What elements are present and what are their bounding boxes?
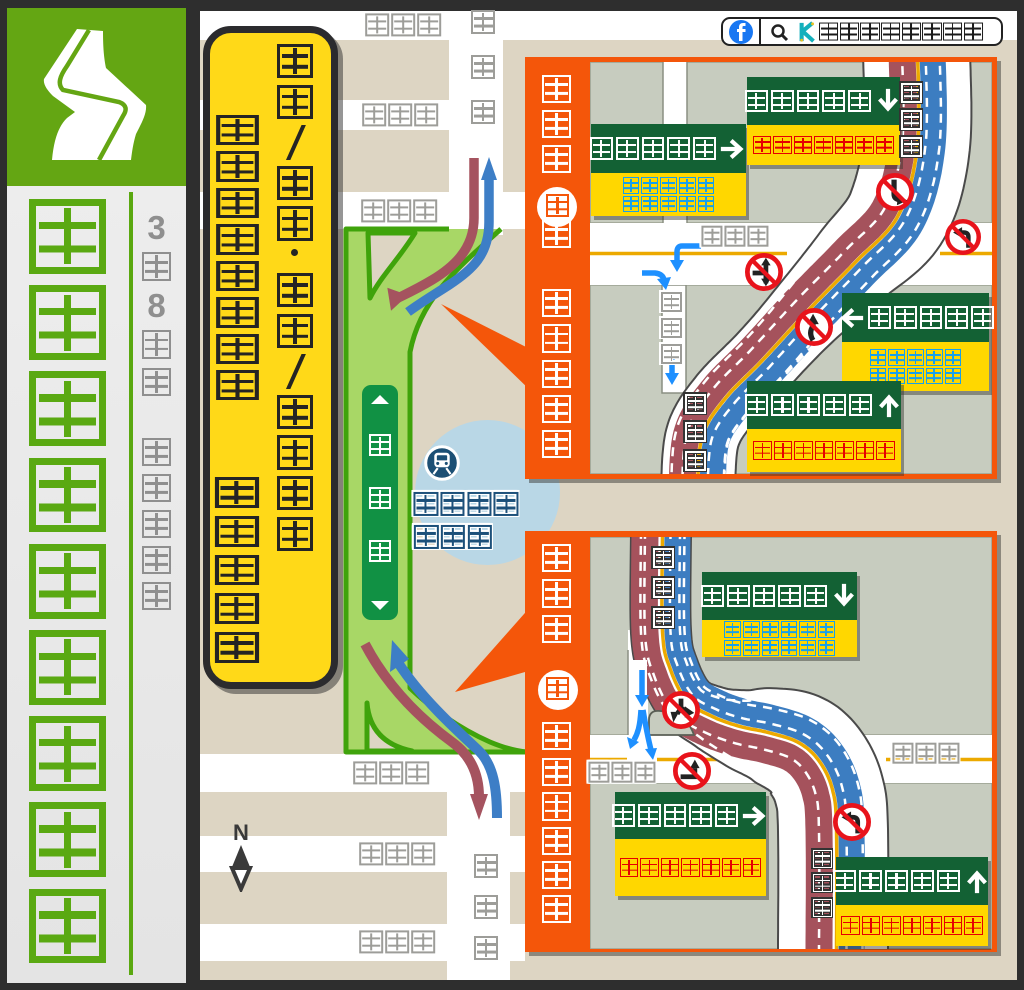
svg-text:N: N — [233, 820, 249, 845]
